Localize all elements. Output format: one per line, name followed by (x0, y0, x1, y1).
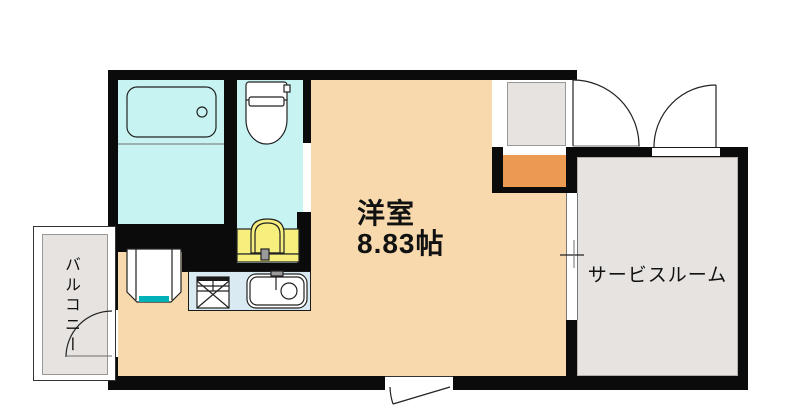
balcony-label: バルコニー (58, 256, 82, 368)
washbasin (237, 219, 299, 262)
main-room-size: 8.83帖 (357, 229, 445, 259)
entrance-double-door (573, 80, 716, 147)
bathtub (118, 87, 224, 144)
toilet (246, 82, 290, 144)
gas-stove (197, 277, 229, 308)
washing-machine-pan (127, 249, 181, 302)
service-room-label: サービスルーム (577, 260, 738, 287)
bottom-door-swing (390, 387, 450, 404)
floor-plan: 洋室 8.83帖 サービスルーム バルコニー (0, 0, 800, 419)
main-room-name: 洋室 (357, 199, 415, 229)
kitchen-sink (247, 271, 307, 308)
